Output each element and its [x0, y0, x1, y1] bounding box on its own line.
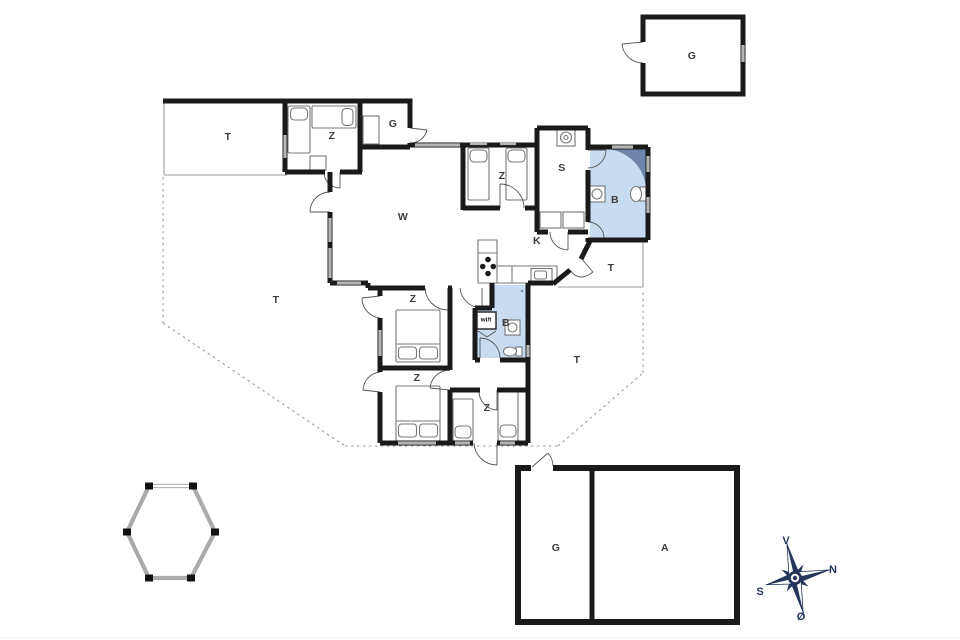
floor-plan: T Z G G Z S B W K T T Z wi/t B T Z Z G A…: [0, 0, 960, 640]
closet: [310, 156, 326, 170]
bed: [288, 106, 356, 153]
floor-plan-drawing: [0, 0, 960, 640]
dot: [521, 290, 523, 292]
washing-machine-icon: [557, 129, 575, 146]
bed: [396, 386, 440, 441]
sink-icon: [589, 186, 605, 202]
toilet-icon: [631, 187, 647, 202]
outbuilding-walls: [518, 468, 737, 622]
detached-garage-walls: [643, 17, 743, 94]
bed: [453, 388, 518, 441]
shelf: [563, 212, 584, 228]
hexagon-pavilion: [123, 483, 219, 582]
compass-rose: [764, 542, 831, 615]
windows: [285, 45, 743, 443]
sink-icon: [505, 320, 520, 335]
closet: [363, 116, 379, 144]
bed: [396, 310, 440, 362]
toilet-icon: [504, 347, 523, 356]
bathroom-fills: [477, 149, 646, 358]
closet-wit-box: [477, 312, 496, 329]
shelf: [540, 212, 561, 228]
